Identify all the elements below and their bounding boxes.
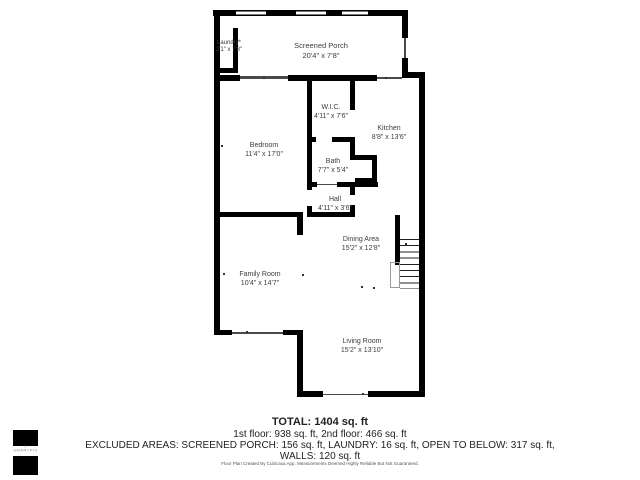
- room-name: Screened Porch: [271, 41, 371, 51]
- logo-text: SMARTPIX: [7, 448, 45, 453]
- room-label-dining-area: Dining Area 15'2" x 12'8": [321, 235, 401, 253]
- room-name: Hall: [305, 195, 365, 204]
- window-marker: [236, 11, 266, 15]
- door-dot: [263, 77, 265, 79]
- door-dot: [221, 145, 223, 147]
- room-name: Living Room: [322, 337, 402, 346]
- room-dims: 7'7" x 5'4": [303, 166, 363, 175]
- wall: [220, 68, 238, 73]
- door-dot: [405, 243, 407, 245]
- floor-plan: Laundry* 2'1" x 7'8" Screened Porch 20'4…: [0, 0, 640, 480]
- window-marker: [296, 11, 326, 15]
- room-dims: 2'1" x 7'8": [201, 47, 257, 54]
- screen-opening-line: [404, 38, 406, 58]
- room-name: W.I.C.: [301, 103, 361, 112]
- wall: [350, 187, 355, 195]
- room-dims: 15'2" x 12'8": [321, 244, 401, 253]
- room-name: Family Room: [220, 270, 300, 279]
- room-label-kitchen: Kitchen 8'8" x 13'6": [359, 124, 419, 142]
- summary-excluded-areas: EXCLUDED AREAS: SCREENED PORCH: 156 sq. …: [0, 440, 640, 451]
- wall: [214, 212, 303, 217]
- wall: [214, 75, 240, 81]
- room-dims: 10'4" x 14'7": [220, 279, 300, 288]
- room-dims: 4'11" x 7'6": [301, 112, 361, 121]
- room-label-bedroom: Bedroom 11'4" x 17'0": [229, 141, 299, 159]
- wall: [297, 330, 303, 396]
- room-dims: 20'4" x 7'8": [271, 51, 371, 61]
- wall: [307, 182, 317, 187]
- disclaimer-text: Floor Plan Created By Cubicasa App. Meas…: [0, 461, 640, 466]
- wall: [402, 10, 408, 38]
- wall: [288, 75, 377, 81]
- room-dims: 8'8" x 13'6": [359, 133, 419, 142]
- room-name: Bedroom: [229, 141, 299, 150]
- wall: [419, 72, 425, 397]
- room-label-living-room: Living Room 15'2" x 13'10": [322, 337, 402, 355]
- summary-total: TOTAL: 1404 sq. ft: [0, 416, 640, 428]
- room-name: Bath: [303, 157, 363, 166]
- window-line: [232, 332, 283, 334]
- wall: [337, 182, 378, 187]
- wall: [297, 217, 303, 235]
- wall: [214, 330, 232, 335]
- door-dot: [362, 393, 364, 395]
- door-dot: [302, 274, 304, 276]
- room-dims: 11'4" x 17'0": [229, 150, 299, 159]
- room-name: Kitchen: [359, 124, 419, 133]
- room-label-family-room: Family Room 10'4" x 14'7": [220, 270, 300, 288]
- room-label-bath: Bath 7'7" x 5'4": [303, 157, 363, 175]
- door-dot: [361, 286, 363, 288]
- wall: [297, 391, 323, 397]
- logo: ⌂ SMARTPIX: [7, 444, 45, 453]
- room-label-hall: Hall 4'11" x 3'6": [305, 195, 365, 213]
- door-dot: [246, 331, 248, 333]
- window-marker: [342, 11, 368, 15]
- stairs-rail: [390, 262, 400, 288]
- room-name: Dining Area: [321, 235, 401, 244]
- room-dims: 15'2" x 13'10": [322, 346, 402, 355]
- room-label-laundry: Laundry* 2'1" x 7'8": [201, 40, 257, 54]
- room-name: Laundry*: [201, 40, 257, 47]
- wall: [368, 391, 425, 397]
- summary-floors: 1st floor: 938 sq. ft, 2nd floor: 466 sq…: [0, 429, 640, 440]
- door-dot: [385, 77, 387, 79]
- room-dims: 4'11" x 3'6": [305, 204, 365, 213]
- stairs: [400, 239, 419, 289]
- screen-opening-line: [377, 77, 402, 79]
- room-label-screened-porch: Screened Porch 20'4" x 7'8": [271, 41, 371, 60]
- room-label-wic: W.I.C. 4'11" x 7'6": [301, 103, 361, 121]
- door-opening-line: [317, 184, 337, 185]
- logo-square-bottom: [13, 456, 38, 475]
- door-dot: [373, 287, 375, 289]
